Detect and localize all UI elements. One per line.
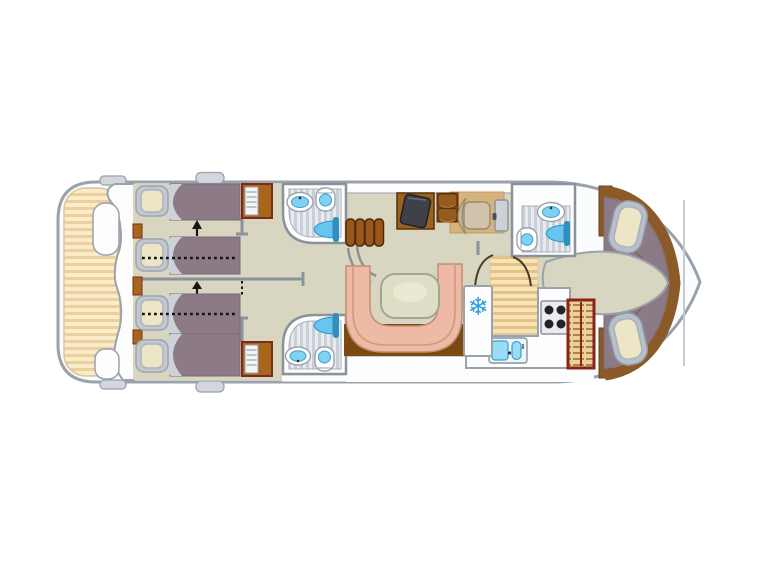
saloon — [344, 264, 470, 356]
larder-cabinet — [568, 300, 594, 368]
bathroom-aft-port — [283, 184, 346, 243]
instrument-panel-icon — [400, 194, 432, 229]
side-deck-bottom — [466, 368, 594, 382]
bed — [136, 294, 240, 334]
sink-icon — [286, 347, 311, 365]
helm-cabinet — [437, 193, 458, 222]
galley-floor — [490, 256, 538, 334]
wardrobe-shelves — [245, 345, 258, 373]
cabinet-door — [438, 209, 457, 222]
step-tread — [365, 219, 374, 246]
fridge: ❄ — [464, 286, 492, 356]
door-handle — [493, 213, 497, 220]
deck-locker — [95, 349, 119, 379]
sink-icon — [287, 193, 313, 212]
toilet-icon — [315, 347, 334, 371]
side-deck-bottom — [346, 356, 466, 382]
step-tread — [356, 219, 365, 246]
toilet-icon — [517, 228, 537, 251]
cleat-icon — [100, 380, 126, 389]
stove-icon — [541, 301, 569, 334]
wall-panel-wood — [133, 224, 142, 238]
bed-pillow — [141, 190, 163, 212]
wardrobe — [242, 184, 272, 218]
bed-pillow — [141, 344, 163, 368]
bed-pillow — [141, 243, 163, 267]
boat-floor-plan: ❄ — [0, 0, 768, 576]
sink-icon — [538, 203, 565, 222]
bed-mattress — [170, 334, 240, 376]
step-tread — [346, 219, 355, 246]
seat-cushion — [464, 202, 490, 229]
toilet-icon — [316, 188, 335, 211]
cleat-icon — [196, 173, 224, 184]
wardrobe-shelves — [245, 187, 258, 215]
bed-mattress — [170, 184, 240, 220]
step-tread — [375, 219, 384, 246]
bed — [136, 334, 240, 376]
table-highlight — [393, 282, 427, 302]
side-door — [495, 200, 508, 231]
cabinet-door — [438, 194, 457, 207]
wall-panel-wood — [133, 277, 142, 295]
kitchen-sink-icon — [489, 338, 527, 363]
side-deck-bottom — [282, 376, 346, 382]
snowflake-icon: ❄ — [468, 292, 489, 321]
deck-locker — [93, 203, 119, 255]
companionway-steps — [346, 219, 384, 246]
bed — [136, 237, 240, 274]
cleat-icon — [196, 381, 224, 392]
helm-station — [397, 192, 508, 234]
bathroom-aft-starboard — [283, 313, 346, 374]
bed-mattress — [170, 237, 240, 274]
boat-floor-plan-canvas: ❄ — [0, 0, 768, 576]
bathroom-bow — [512, 184, 575, 256]
bed — [136, 184, 240, 220]
wardrobe — [242, 342, 272, 376]
